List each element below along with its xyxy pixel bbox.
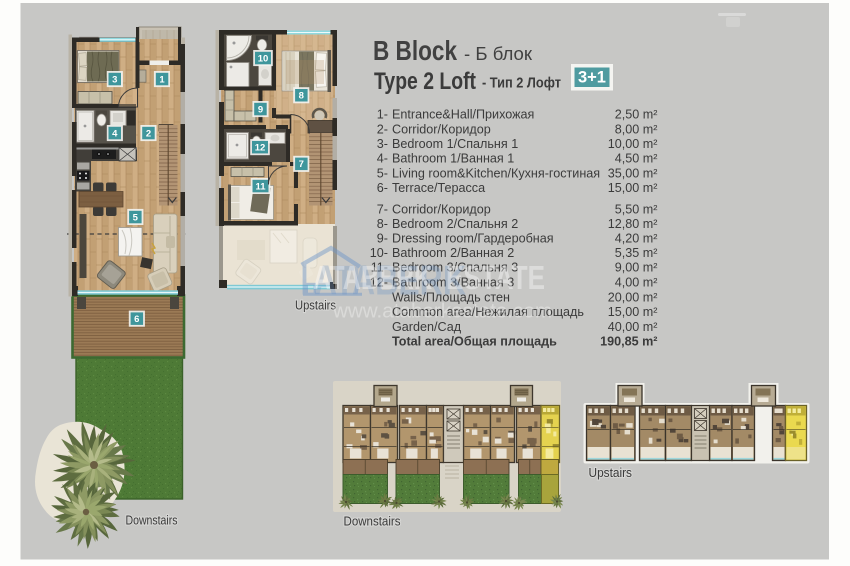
- svg-text:11: 11: [255, 181, 266, 192]
- svg-text:4: 4: [112, 128, 118, 139]
- svg-text:190,85 m²: 190,85 m²: [600, 335, 657, 349]
- svg-text:20,00 m²: 20,00 m²: [608, 291, 658, 305]
- svg-text:7-: 7-: [377, 202, 388, 216]
- svg-text:9: 9: [258, 104, 263, 115]
- svg-text:Bedroom 2/Спальня 2: Bedroom 2/Спальня 2: [392, 217, 518, 231]
- svg-text:- Тип 2 Лофт: - Тип 2 Лофт: [482, 76, 561, 92]
- svg-text:Terrace/Терасса: Terrace/Терасса: [392, 181, 485, 195]
- svg-text:5,50 m²: 5,50 m²: [615, 202, 658, 216]
- svg-text:12: 12: [255, 143, 266, 154]
- svg-text:Corridor/Коридор: Corridor/Коридор: [392, 202, 491, 216]
- svg-text:10: 10: [258, 53, 269, 64]
- svg-text:ATABERK: ATABERK: [313, 259, 432, 296]
- svg-text:Entrance&Hall/Прихожая: Entrance&Hall/Прихожая: [392, 108, 534, 122]
- svg-text:5: 5: [133, 212, 139, 223]
- svg-text:9,00 m²: 9,00 m²: [615, 261, 658, 275]
- svg-text:4,20 m²: 4,20 m²: [615, 232, 658, 246]
- svg-text:15,00 m²: 15,00 m²: [608, 305, 658, 319]
- svg-text:2: 2: [146, 128, 151, 139]
- svg-text:4,00 m²: 4,00 m²: [615, 275, 658, 289]
- svg-text:Downstairs: Downstairs: [344, 515, 401, 529]
- svg-text:7: 7: [299, 159, 304, 170]
- svg-text:Bathroom 1/Ванная 1: Bathroom 1/Ванная 1: [392, 152, 514, 166]
- svg-text:9-: 9-: [377, 232, 388, 246]
- svg-text:4,50 m²: 4,50 m²: [615, 152, 658, 166]
- svg-text:2,50 m²: 2,50 m²: [615, 108, 658, 122]
- svg-text:6: 6: [134, 314, 139, 325]
- svg-text:15,00 m²: 15,00 m²: [608, 181, 658, 195]
- svg-text:5-: 5-: [377, 166, 388, 180]
- svg-text:1: 1: [159, 74, 165, 85]
- svg-text:Corridor/Коридор: Corridor/Коридор: [392, 122, 491, 136]
- svg-text:Downstairs: Downstairs: [126, 513, 178, 528]
- svg-text:4-: 4-: [377, 152, 388, 166]
- svg-text:3+1: 3+1: [578, 69, 606, 87]
- svg-text:3-: 3-: [377, 137, 388, 151]
- svg-text:1-: 1-: [377, 108, 388, 122]
- svg-text:Dressing room/Гардеробная: Dressing room/Гардеробная: [392, 232, 554, 246]
- svg-text:10,00 m²: 10,00 m²: [608, 137, 658, 151]
- svg-text:12,80 m²: 12,80 m²: [608, 217, 658, 231]
- svg-text:B Block: B Block: [373, 35, 458, 66]
- svg-text:5,35 m²: 5,35 m²: [615, 246, 658, 260]
- svg-text:6-: 6-: [377, 181, 388, 195]
- svg-text:ESTATE: ESTATE: [446, 259, 545, 296]
- svg-text:35,00 m²: 35,00 m²: [608, 166, 658, 180]
- svg-text:Total area/Общая площадь: Total area/Общая площадь: [392, 335, 557, 349]
- svg-text:8: 8: [299, 91, 304, 102]
- svg-text:Living room&Kitchen/Кухня-гост: Living room&Kitchen/Кухня-гостиная: [392, 166, 600, 180]
- svg-text:Upstairs: Upstairs: [589, 465, 633, 480]
- svg-text:8,00 m²: 8,00 m²: [615, 122, 658, 136]
- svg-text:3: 3: [112, 74, 117, 85]
- svg-text:Bedroom 1/Спальня 1: Bedroom 1/Спальня 1: [392, 137, 518, 151]
- svg-text:- Б блок: - Б блок: [464, 44, 532, 64]
- svg-text:www.ataberkestate.com: www.ataberkestate.com: [332, 300, 552, 323]
- svg-text:2-: 2-: [377, 122, 388, 136]
- svg-text:Type 2 Loft: Type 2 Loft: [374, 68, 476, 95]
- svg-text:40,00 m²: 40,00 m²: [608, 320, 658, 334]
- svg-text:8-: 8-: [377, 217, 388, 231]
